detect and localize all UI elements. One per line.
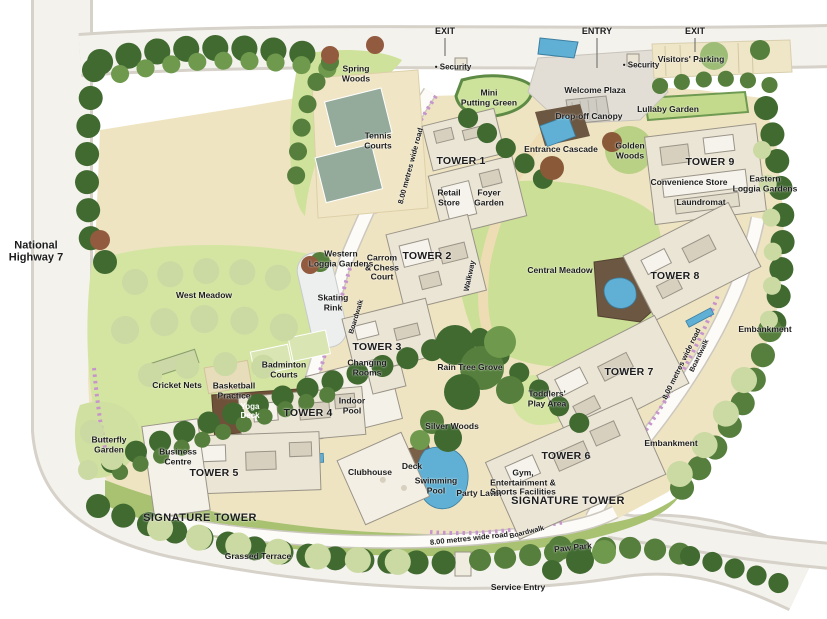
security-hut-left <box>455 58 467 70</box>
site-map-graphic <box>0 0 827 619</box>
tower-9-building <box>645 124 767 225</box>
swimming-pool-water <box>417 447 468 509</box>
security-hut-right <box>627 54 639 66</box>
site-plan: National Highway 7EXITENTRYEXIT• Securit… <box>0 0 827 619</box>
top-water-feature <box>538 38 578 58</box>
service-building <box>455 552 471 576</box>
